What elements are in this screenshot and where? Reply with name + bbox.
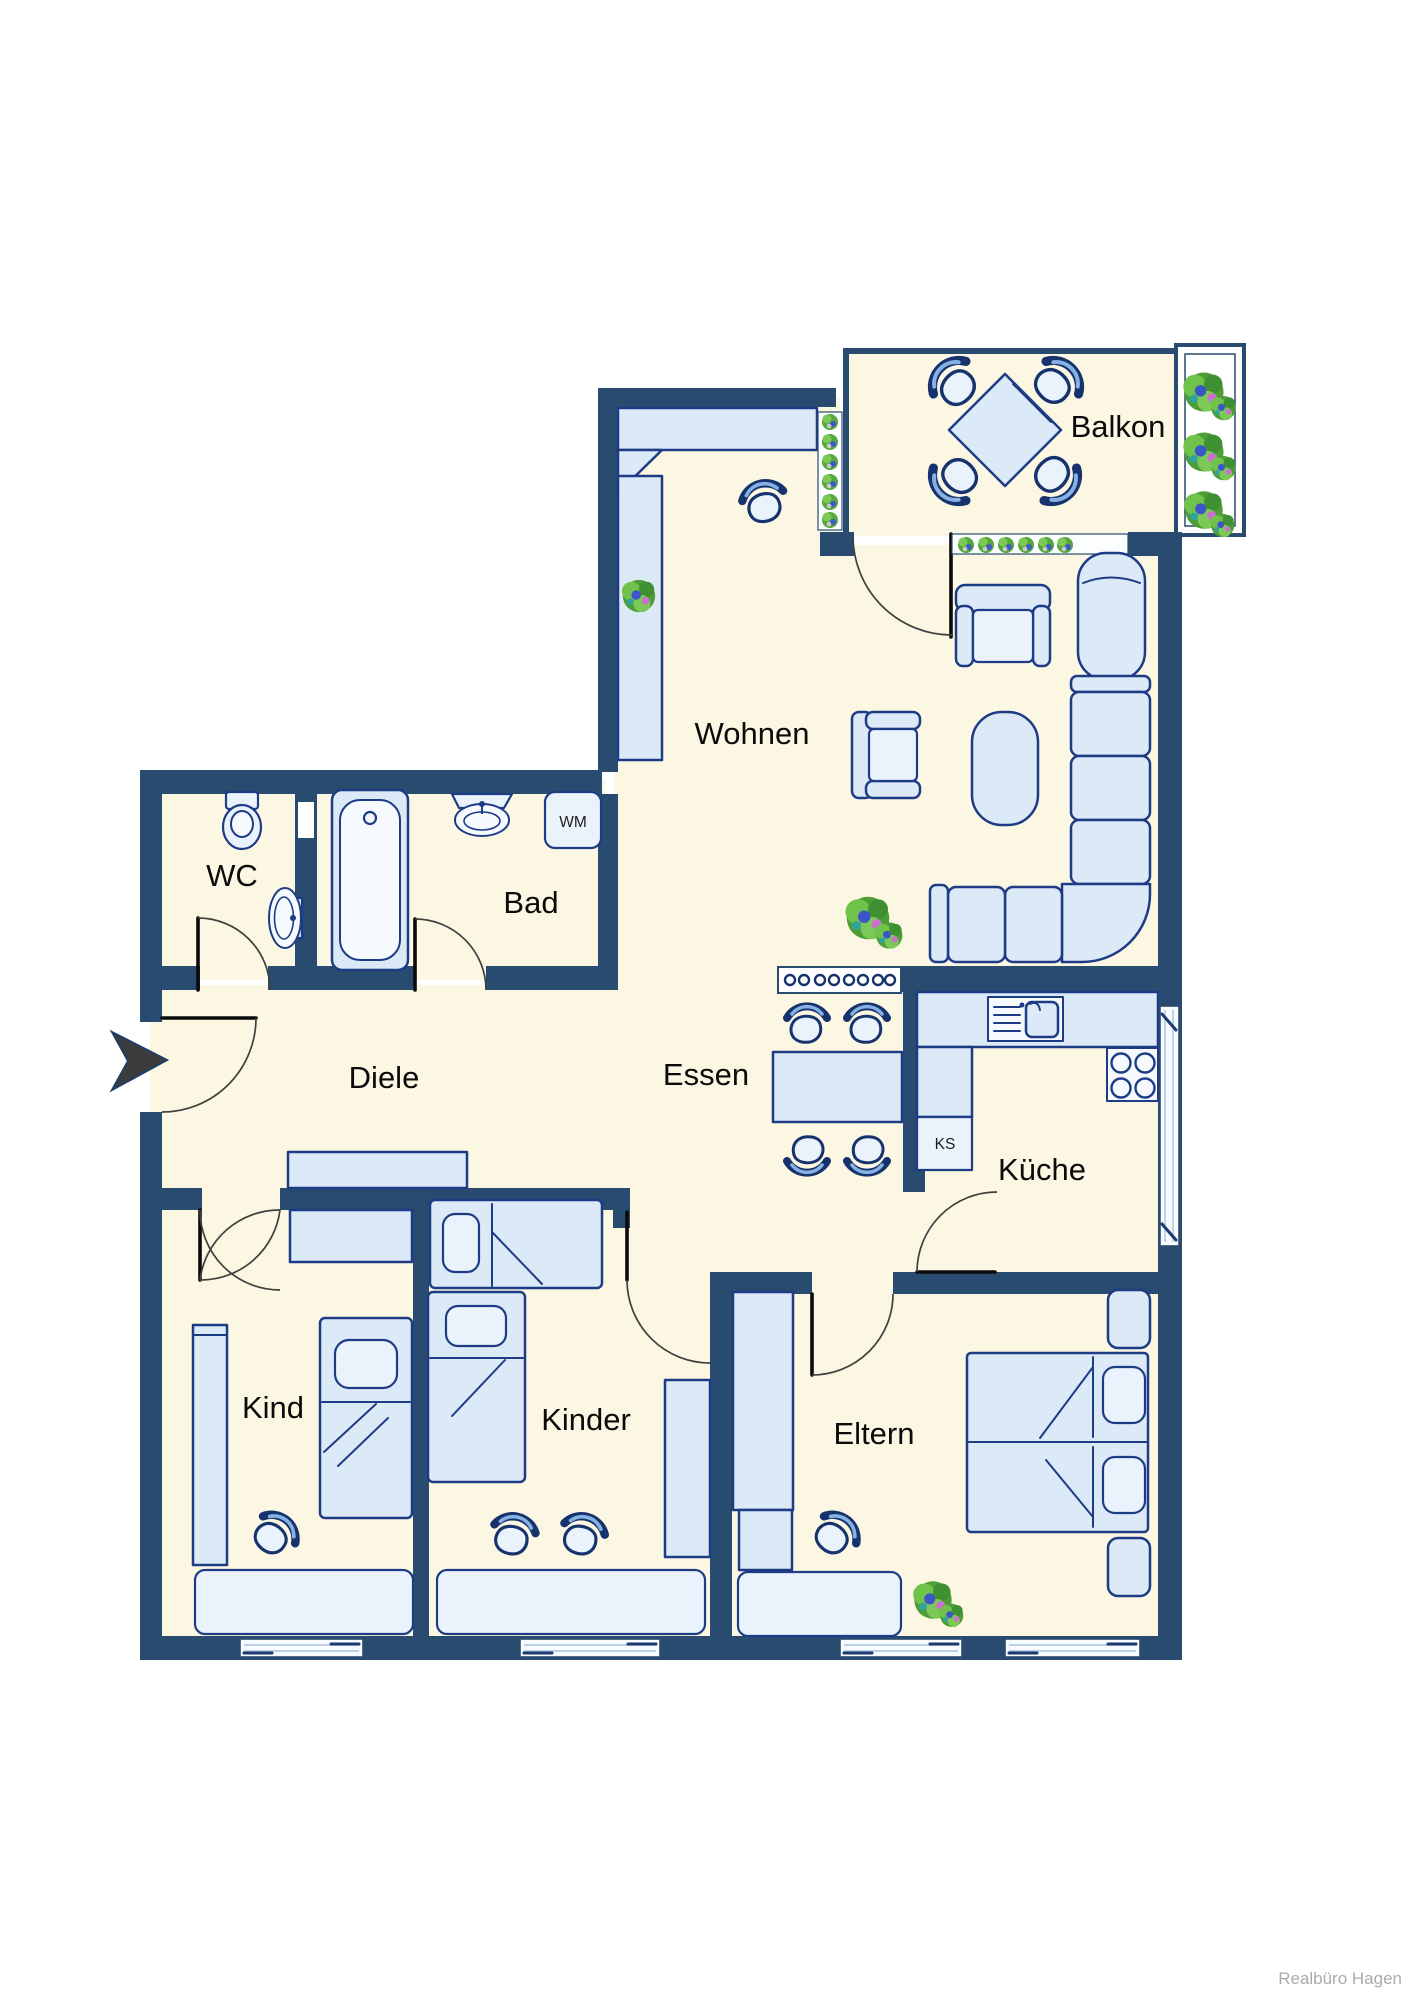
wohnen-flower-sill — [818, 412, 842, 530]
bad-washbasin — [452, 794, 512, 836]
wall-wohnen-west — [598, 388, 618, 772]
wc-washbasin — [269, 888, 302, 948]
kinder-wardrobe — [665, 1380, 710, 1557]
label-balkon: Balkon — [1071, 409, 1166, 444]
nightstand — [1108, 1538, 1150, 1596]
lounge-chair — [1078, 553, 1145, 680]
kind-bed — [320, 1318, 412, 1518]
floorplan-page: WM — [0, 0, 1413, 2000]
kitchen-counter-left — [917, 1047, 972, 1117]
window-kinder-south — [520, 1639, 660, 1657]
nightstand — [1108, 1290, 1150, 1348]
wall-balcony-south-left — [820, 532, 854, 556]
label-eltern: Eltern — [834, 1416, 915, 1451]
label-essen: Essen — [663, 1057, 749, 1092]
refrigerator-label: KS — [935, 1136, 956, 1153]
wall-eltern-north-left — [710, 1272, 812, 1294]
eltern-double-bed — [967, 1353, 1148, 1532]
kind-desk — [195, 1570, 413, 1634]
kinder-bed-top — [430, 1200, 602, 1288]
armchair-top — [956, 585, 1050, 666]
eltern-desk — [738, 1572, 901, 1636]
refrigerator: KS — [917, 1117, 972, 1170]
kinder-bed-left — [428, 1292, 525, 1482]
window-eltern-south-1 — [840, 1639, 962, 1657]
toilet — [223, 792, 261, 849]
eltern-wardrobe — [733, 1292, 793, 1570]
wall-west-lower — [140, 1112, 162, 1660]
wall-kind-north-left — [162, 1188, 202, 1210]
window-kind-south — [240, 1639, 363, 1657]
dining-table — [773, 1052, 902, 1122]
wall-kind-kinder-divider — [413, 1188, 429, 1648]
label-kinder: Kinder — [541, 1402, 631, 1437]
window-kueche-east — [1160, 1006, 1179, 1246]
label-kind: Kind — [242, 1390, 304, 1425]
window-eltern-south-2 — [1005, 1639, 1140, 1657]
sideboard — [778, 967, 901, 993]
wall-wc-south-right — [268, 966, 317, 990]
wall-wc-south-left — [162, 966, 200, 990]
watermark: Realbüro Hagen — [1278, 1969, 1402, 1988]
kind-wardrobe — [193, 1325, 227, 1565]
washing-machine: WM — [545, 792, 601, 848]
label-wc: WC — [206, 858, 258, 893]
label-bad: Bad — [503, 885, 558, 920]
wall-kueche-north — [901, 966, 1160, 992]
label-wohnen: Wohnen — [695, 716, 810, 751]
wall-bad-south-right — [486, 966, 602, 990]
wall-wohnen-north — [598, 388, 836, 407]
kinder-desk — [437, 1570, 705, 1634]
wall-niche — [298, 802, 314, 838]
wall-west-upper — [140, 794, 162, 1022]
diele-furniture — [288, 1152, 467, 1188]
hall-cabinet — [288, 1152, 467, 1188]
balcony-door-flower-sill — [952, 534, 1128, 554]
kitchen-sink — [988, 997, 1063, 1041]
label-diele: Diele — [349, 1060, 420, 1095]
bathtub — [332, 790, 408, 970]
armchair-left — [852, 712, 920, 798]
washing-machine-label: WM — [559, 814, 587, 831]
kind-cabinet — [290, 1210, 412, 1262]
coffee-table — [972, 712, 1038, 825]
wall-kinder-eltern-divider — [710, 1278, 732, 1648]
floorplan-drawing: WM — [0, 0, 1413, 2000]
label-kueche: Küche — [998, 1152, 1086, 1187]
stove — [1107, 1048, 1158, 1101]
